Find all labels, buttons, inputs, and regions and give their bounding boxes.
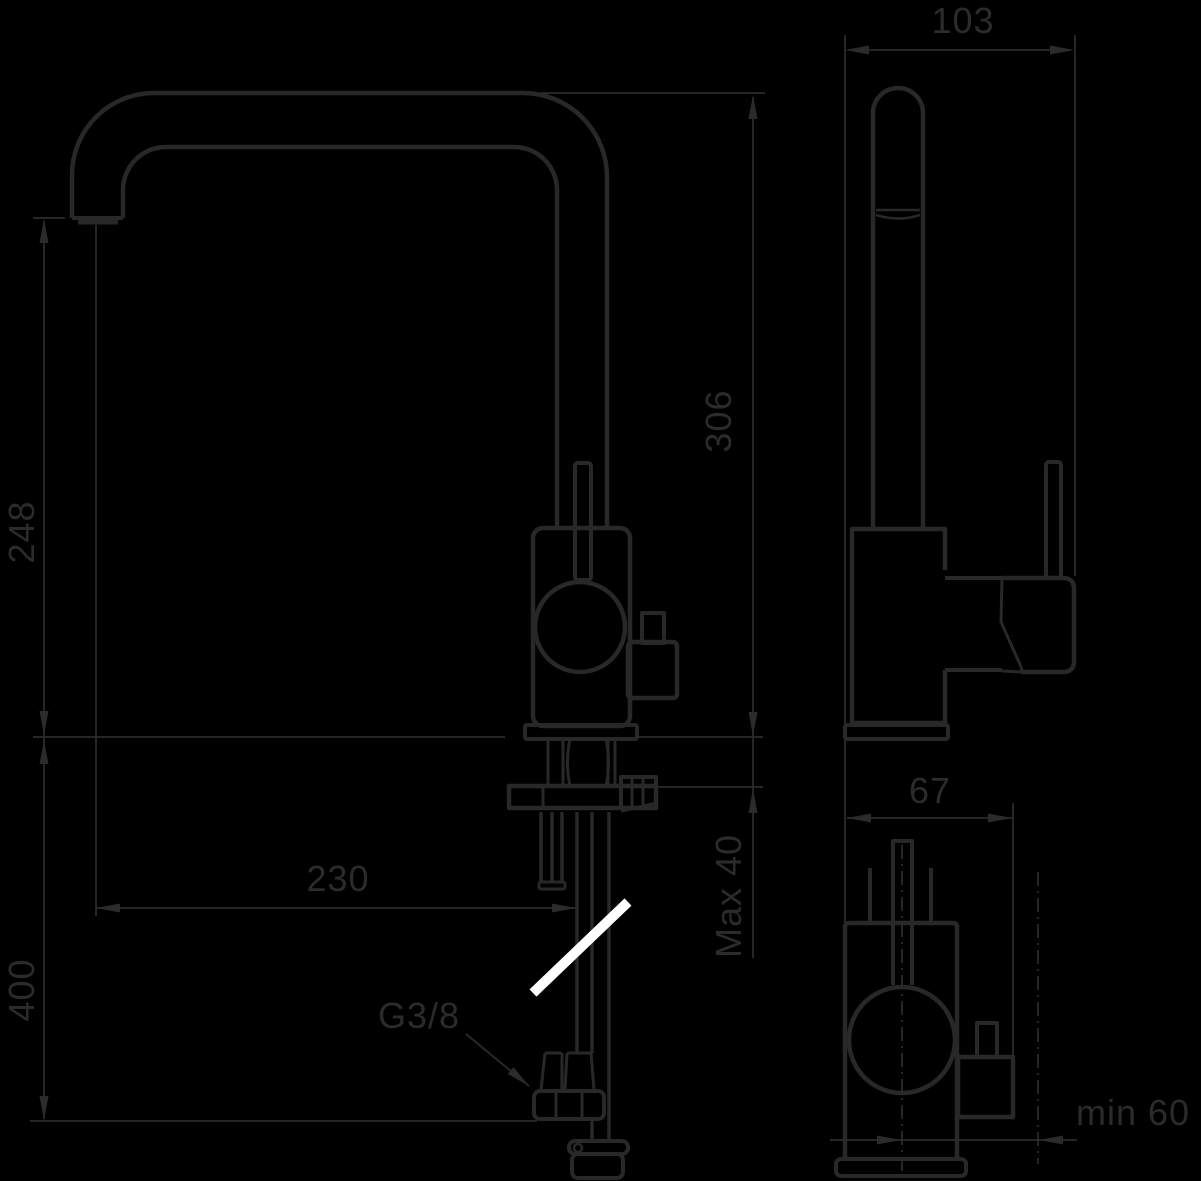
spout-outer-contour (72, 93, 607, 528)
handle-lever-front (575, 463, 591, 580)
body-step-lines (945, 578, 1002, 670)
base-plate-back (836, 1159, 966, 1176)
faucet-body-front (533, 528, 630, 726)
valve-housing-back (958, 1057, 1013, 1117)
side-view (845, 88, 1074, 739)
dim-label-400: 400 (4, 958, 40, 1021)
drawing-canvas: 103 306 248 230 400 Max 40 G3/8 67 min 6… (0, 0, 1201, 1181)
label-g38-thread: G3/8 (378, 998, 460, 1034)
spout-stub-back (870, 868, 931, 923)
dim-label-max40: Max 40 (711, 834, 747, 958)
g38-nut (534, 1091, 604, 1119)
handle-housing-details (1001, 578, 1022, 672)
bottom-view (836, 841, 1038, 1176)
front-view (72, 93, 677, 1178)
dim-label-306: 306 (701, 389, 737, 452)
valve-knob-front (642, 613, 664, 643)
escutcheon-plate (509, 786, 656, 808)
dim-label-min60: min 60 (1076, 1095, 1190, 1131)
dim-label-248: 248 (4, 500, 40, 563)
spout-tube-side (873, 88, 923, 529)
body-column-side (852, 529, 945, 723)
g38-nut-facets (556, 1091, 582, 1119)
valve-joint-front (535, 582, 625, 672)
base-plate-side (845, 725, 948, 739)
collar-detail (574, 1144, 582, 1152)
body-back (845, 923, 957, 1160)
highlight-stripe (533, 902, 628, 993)
mounting-stud (541, 812, 562, 883)
dim-label-230: 230 (306, 861, 369, 897)
dim-label-103: 103 (931, 3, 994, 39)
dim-label-67: 67 (909, 773, 951, 809)
spout-inner-contour (123, 147, 557, 528)
lever-back (893, 841, 912, 985)
mounting-nut (539, 882, 565, 889)
handle-lever-side (1046, 462, 1061, 578)
aerator-side (876, 210, 920, 219)
valve-housing-front (628, 642, 677, 698)
shank (548, 739, 615, 786)
valve-knob-back (977, 1023, 997, 1057)
pipe-end-cap (572, 1154, 623, 1178)
faucet-drawing (0, 0, 1201, 1181)
handle-housing-side (1002, 578, 1074, 672)
hose-cones (541, 1053, 594, 1090)
